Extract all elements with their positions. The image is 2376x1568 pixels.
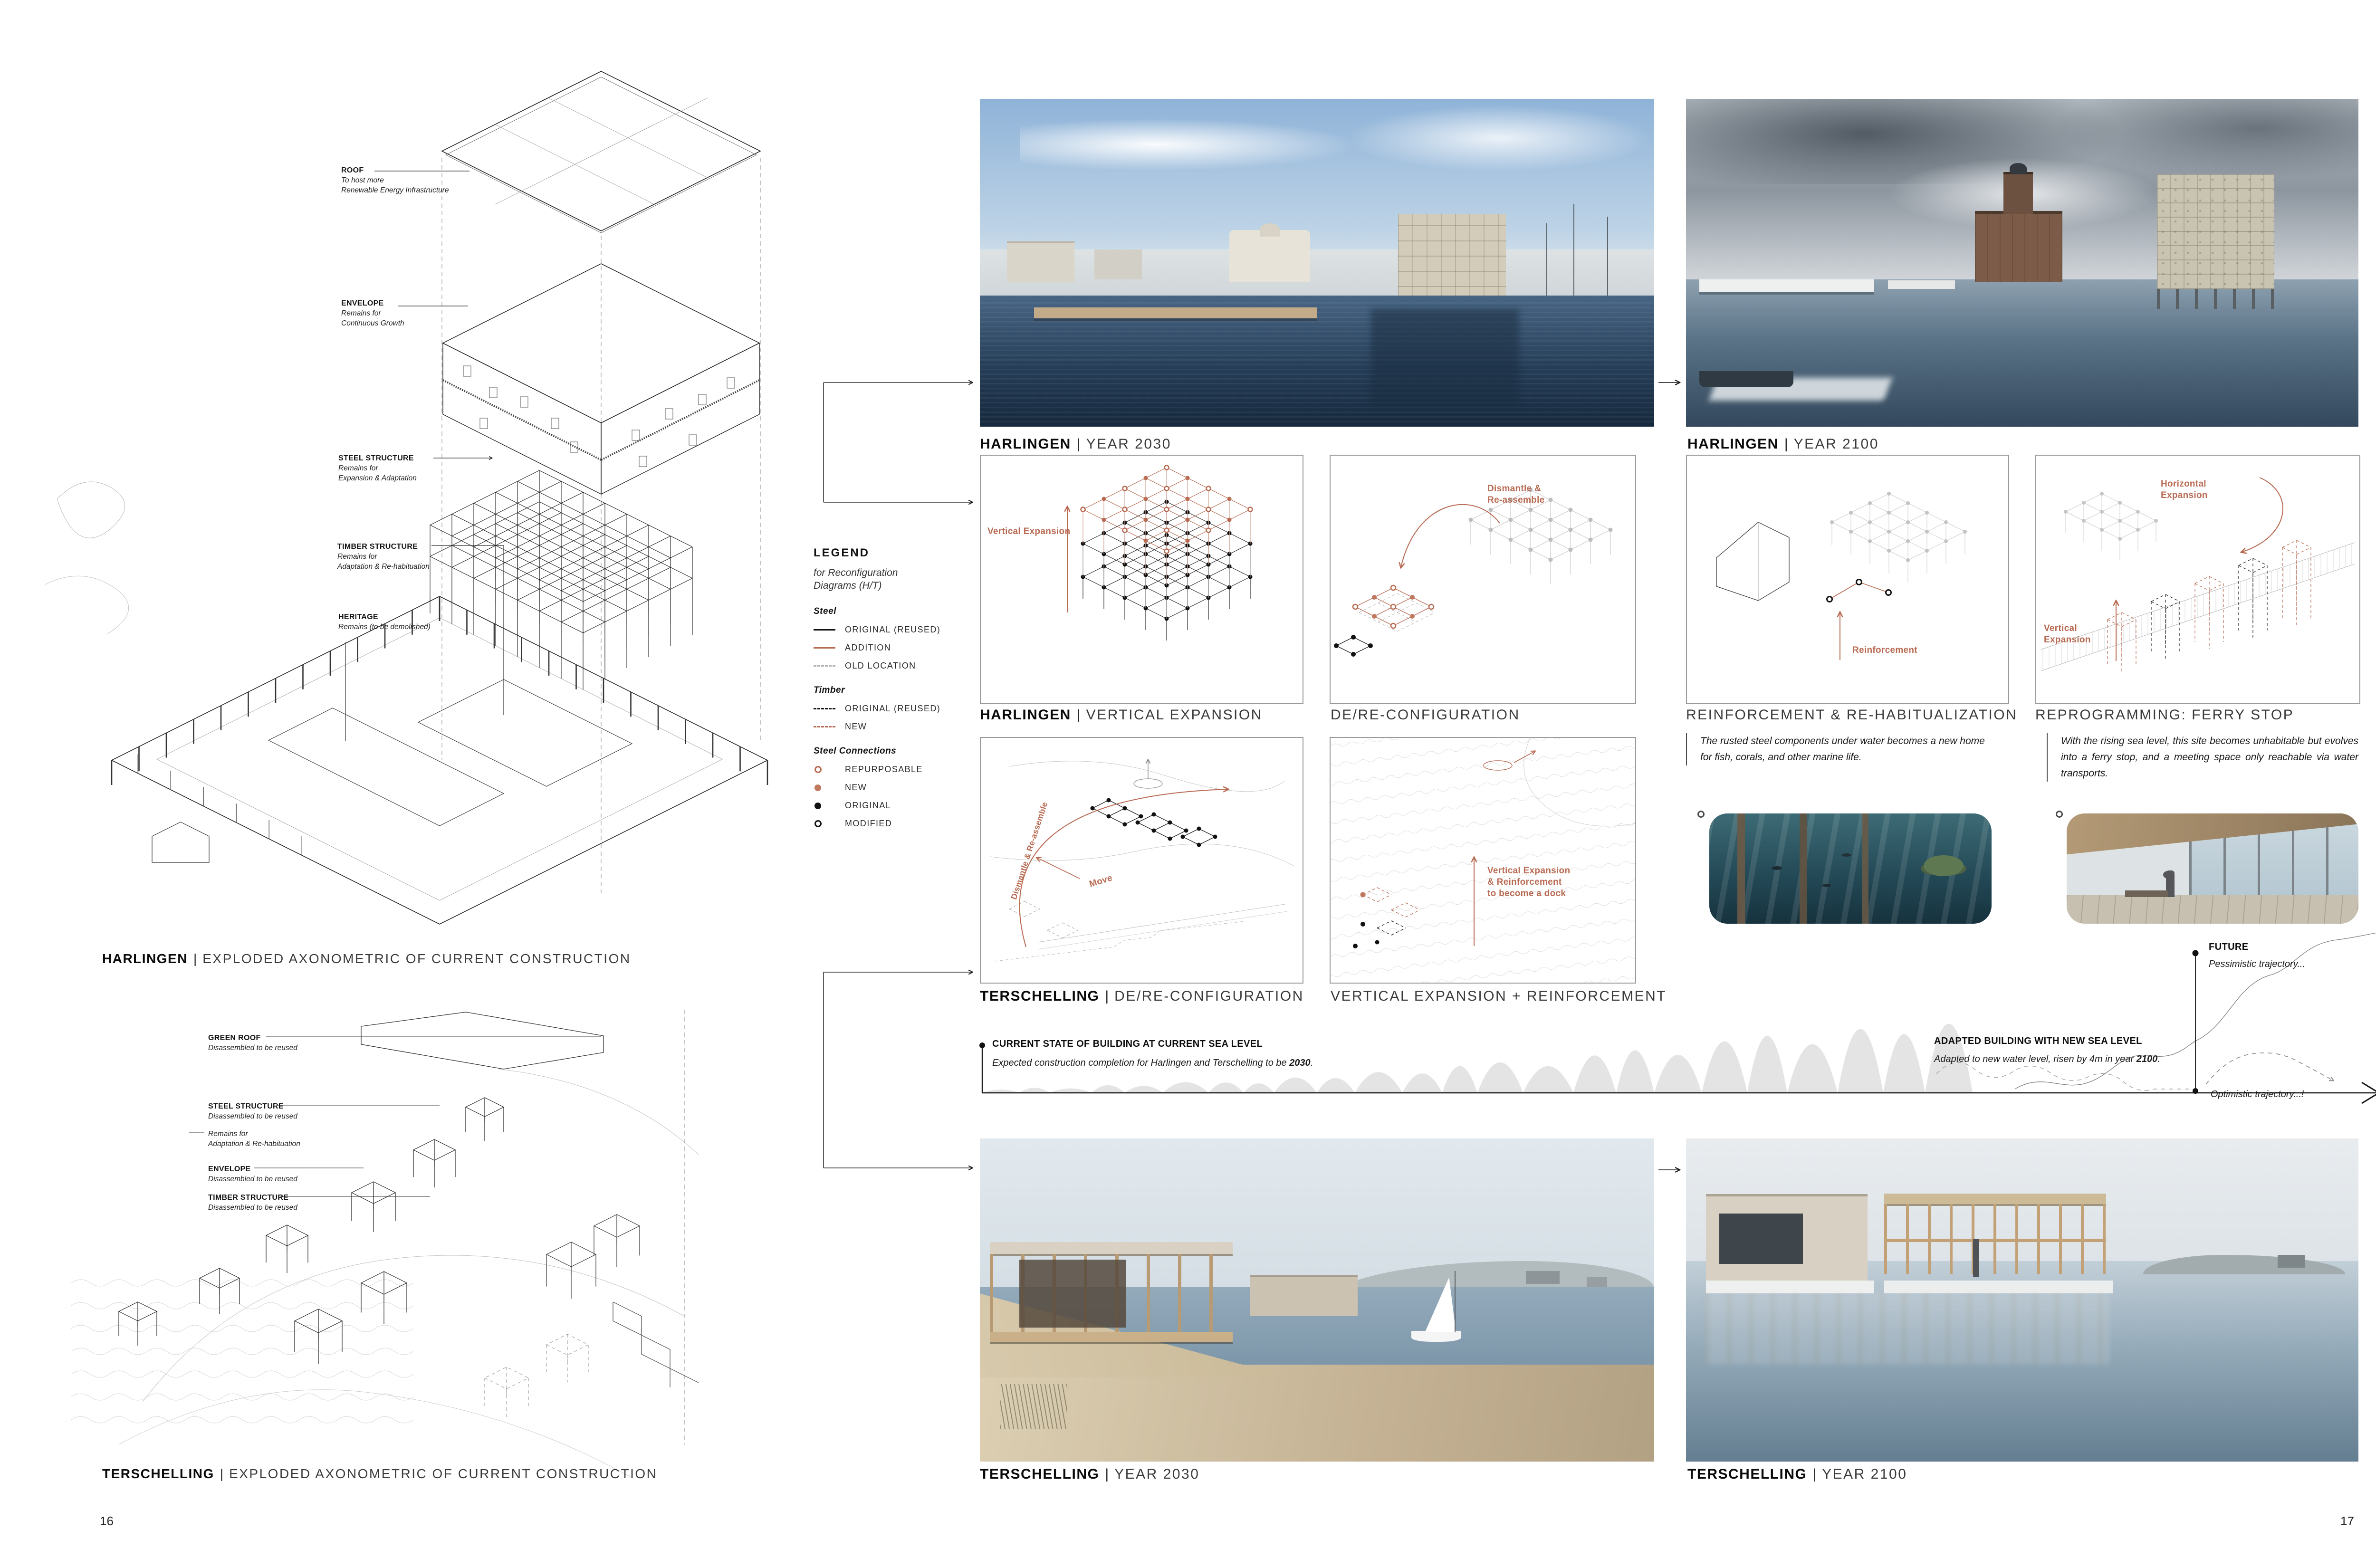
- page-number-left: 16: [100, 1514, 114, 1529]
- dune-grass: [1000, 1384, 1068, 1429]
- photo-underwater-habitat: [1709, 813, 1992, 924]
- sailboat-hull: [1411, 1331, 1461, 1342]
- timeline-milestone-1-title: CURRENT STATE OF BUILDING AT CURRENT SEA…: [992, 1039, 1263, 1050]
- legend-subtitle: for Reconfiguration Diagrams (H/T): [814, 566, 932, 592]
- town-silhouette: [980, 249, 1654, 302]
- legend-item: NEW: [814, 783, 962, 793]
- annotation-dock: Vertical Expansion & Reinforcement to be…: [1487, 865, 1570, 899]
- timeline-milestone-2-desc: Adapted to new water level, risen by 4m …: [1934, 1054, 2160, 1065]
- portfolio-spread: { "accent": "#b86a52", "pages": {"left":…: [0, 0, 2376, 1568]
- church-building: [1975, 211, 2062, 283]
- axon-label-roof: ROOF To host more Renewable Energy Infra…: [341, 165, 498, 195]
- note-reinforcement: The rusted steel components under water …: [1686, 733, 1985, 765]
- second-pavilion: [1250, 1275, 1358, 1316]
- caption-diagram-5: TERSCHELLING|DE/RE-CONFIGURATION: [980, 988, 1304, 1004]
- building: [1094, 249, 1141, 279]
- sea-turtle: [1924, 855, 1964, 876]
- diagram-vertical-expansion: Vertical Expansion: [980, 455, 1303, 704]
- diagram-de-re-configuration: Dismantle & Re-assemble: [1330, 455, 1636, 704]
- legend-group-connections: Steel Connections: [814, 746, 962, 756]
- legend-item: REPURPOSABLE: [814, 765, 962, 774]
- person-head: [2163, 871, 2173, 879]
- caption-diagram-1: HARLINGEN|VERTICAL EXPANSION: [980, 707, 1263, 723]
- church-tower: [2003, 172, 2033, 214]
- legend-group-timber: Timber: [814, 685, 962, 696]
- diagram-drawing: [1687, 456, 2008, 703]
- distant-buildings: [2278, 1255, 2305, 1268]
- legend-item: ORIGINAL (REUSED): [814, 625, 962, 635]
- solid-black-line-swatch: [814, 629, 836, 631]
- axon-label-envelope-t: ENVELOPE Disassembled to be reused: [208, 1164, 351, 1184]
- diagram-drawing: [1331, 738, 1635, 983]
- diagram-drawing: [981, 456, 1303, 703]
- wooden-deck: [1034, 307, 1317, 318]
- pier-post: [1737, 813, 1745, 924]
- floating-building: [1706, 1194, 1868, 1281]
- pier-legs: [2157, 289, 2275, 308]
- annotation-dismantle: Dismantle & Re-assemble: [1487, 483, 1545, 506]
- caption-terschelling-2100: TERSCHELLING|YEAR 2100: [1687, 1466, 1907, 1482]
- render-terschelling-2030-image: [980, 1138, 1654, 1462]
- mast: [1546, 223, 1547, 296]
- axon-label-steel: STEEL STRUCTURE Remains for Expansion & …: [338, 453, 481, 483]
- white-platform: [1888, 280, 1955, 289]
- frame-roof: [1884, 1194, 2106, 1204]
- caption-harlingen-2030: HARLINGEN|YEAR 2030: [980, 436, 1171, 452]
- frame-beam: [1884, 1239, 2106, 1242]
- timeline-optimistic-label: Optimistic trajectory...!: [2211, 1089, 2304, 1100]
- pontoon: [1884, 1281, 2113, 1293]
- timeline-future-title: FUTURE: [2209, 942, 2249, 953]
- diagram-drawing: [1331, 456, 1635, 703]
- legend: LEGEND for Reconfiguration Diagrams (H/T…: [814, 546, 962, 829]
- diagram-terschelling-reconfig: Dismantle & Re-assemble Move: [980, 737, 1303, 984]
- caption-harlingen-2100: HARLINGEN|YEAR 2100: [1687, 436, 1879, 452]
- dashed-gray-line-swatch: [814, 665, 836, 667]
- water-ripples: [980, 302, 1654, 427]
- annotation-vertical-expansion-2: Vertical Expansion: [2044, 623, 2091, 646]
- diagram-reinforcement: Reinforcement: [1686, 455, 2009, 704]
- render-harlingen-2100-image: [1686, 99, 2358, 427]
- mast: [1607, 217, 1608, 296]
- label-desc: To host more Renewable Energy Infrastruc…: [341, 175, 498, 195]
- boat: [1699, 371, 1793, 388]
- legend-item: OLD LOCATION: [814, 661, 962, 671]
- window-band: [1719, 1214, 1803, 1264]
- pier-post: [1862, 813, 1868, 924]
- cloud: [1351, 105, 1647, 171]
- dashed-black-line-swatch: [814, 708, 836, 709]
- label-title: ROOF: [341, 165, 498, 175]
- caption-diagram-4: REPROGRAMMING: FERRY STOP: [2035, 707, 2294, 723]
- deck-floor: [2067, 895, 2358, 924]
- legend-item: ORIGINAL: [814, 801, 962, 811]
- ring-red-dot-swatch: [814, 766, 836, 773]
- caption-diagram-2: DE/RE-CONFIGURATION: [1331, 707, 1520, 723]
- axon-label-remains-t: Remains for Adaptation & Re-habituation: [208, 1129, 360, 1149]
- note-ferry-stop: With the rising sea level, this site bec…: [2047, 733, 2358, 782]
- caption-terschelling-axon: TERSCHELLING|EXPLODED AXONOMETRIC OF CUR…: [102, 1466, 657, 1482]
- annotation-reinforcement: Reinforcement: [1852, 645, 1917, 656]
- legend-item: ORIGINAL (REUSED): [814, 704, 962, 714]
- legend-item: MODIFIED: [814, 819, 962, 829]
- legend-item: ADDITION: [814, 643, 962, 653]
- white-platform: [1699, 279, 1874, 293]
- connector-ring: [1697, 811, 1705, 818]
- mast: [1573, 204, 1574, 296]
- distant-buildings: [1526, 1271, 1560, 1284]
- mast: [1455, 1271, 1456, 1332]
- axon-label-timber: TIMBER STRUCTURE Remains for Adaptation …: [337, 542, 489, 572]
- distant-buildings: [1587, 1277, 1607, 1287]
- pavilion-interior: [1019, 1260, 1126, 1328]
- render-harlingen-2030-image: [980, 99, 1654, 427]
- ring-black-dot-swatch: [814, 820, 836, 827]
- cloud: [1020, 118, 1358, 171]
- beach-pavilion: [990, 1242, 1233, 1352]
- caption-diagram-6: VERTICAL EXPANSION + REINFORCEMENT: [1331, 988, 1667, 1004]
- dashed-red-line-swatch: [814, 726, 836, 727]
- beach: [980, 1365, 1654, 1462]
- cube-building: [1398, 214, 1506, 302]
- legend-title: LEGEND: [814, 546, 962, 560]
- fish: [1842, 853, 1851, 857]
- filled-red-dot-swatch: [814, 784, 836, 791]
- axon-label-envelope: ENVELOPE Remains for Continuous Growth: [341, 298, 484, 328]
- pavilion-deck: [990, 1332, 1233, 1342]
- filled-black-dot-swatch: [814, 803, 836, 809]
- page-number-right: 17: [2340, 1514, 2354, 1529]
- diagram-ferry-stop: Horizontal Expansion Vertical Expansion: [2035, 455, 2360, 704]
- annotation-horizontal-expansion: Horizontal Expansion: [2161, 478, 2208, 501]
- caption-terschelling-2030: TERSCHELLING|YEAR 2030: [980, 1466, 1199, 1482]
- connector-ring: [2056, 811, 2063, 818]
- solid-red-line-swatch: [814, 647, 836, 649]
- bench: [2125, 890, 2168, 897]
- axon-label-greenroof: GREEN ROOF Disassembled to be reused: [208, 1033, 351, 1053]
- timeline-future-desc: Pessimistic trajectory...: [2209, 959, 2305, 970]
- caption-diagram-3: REINFORCEMENT & RE-HABITUALIZATION: [1686, 707, 2017, 723]
- legend-group-steel: Steel: [814, 606, 962, 617]
- tower-dome: [2010, 163, 2027, 174]
- axon-label-heritage: HERITAGE Remains (to be demolished): [338, 612, 490, 632]
- person-silhouette: [1973, 1239, 1979, 1277]
- timeline-milestone-2-title: ADAPTED BUILDING WITH NEW SEA LEVEL: [1934, 1036, 2142, 1047]
- reflection: [1371, 309, 1519, 407]
- axon-label-timber-t: TIMBER STRUCTURE Disassembled to be reus…: [208, 1193, 351, 1213]
- pier-post: [1800, 813, 1807, 924]
- annotation-vertical-expansion: Vertical Expansion: [987, 526, 1070, 537]
- annotation-move: Move: [1088, 872, 1114, 890]
- domed-building: [1229, 230, 1310, 282]
- pavilion-roof: [990, 1242, 1233, 1254]
- photo-ferry-stop-interior: [2067, 813, 2358, 924]
- annotation-dismantle-reassemble: Dismantle & Re-assemble: [1008, 801, 1051, 901]
- caption-harlingen-axon: HARLINGEN|EXPLODED AXONOMETRIC OF CURREN…: [102, 951, 631, 966]
- cube-building: [2157, 174, 2275, 289]
- axon-label-steel-t: STEEL STRUCTURE Disassembled to be reuse…: [208, 1101, 351, 1121]
- dome: [1260, 223, 1280, 237]
- legend-item: NEW: [814, 722, 962, 732]
- building: [1007, 241, 1074, 283]
- timber-frame-pavilion: [1884, 1194, 2106, 1281]
- render-terschelling-2100-image: [1686, 1138, 2358, 1462]
- diagram-vertical-reinforcement: Vertical Expansion & Reinforcement to be…: [1330, 737, 1636, 984]
- reflection: [1706, 1293, 2109, 1365]
- timeline-milestone-1-desc: Expected construction completion for Har…: [992, 1058, 1313, 1069]
- pontoon: [1706, 1281, 1874, 1293]
